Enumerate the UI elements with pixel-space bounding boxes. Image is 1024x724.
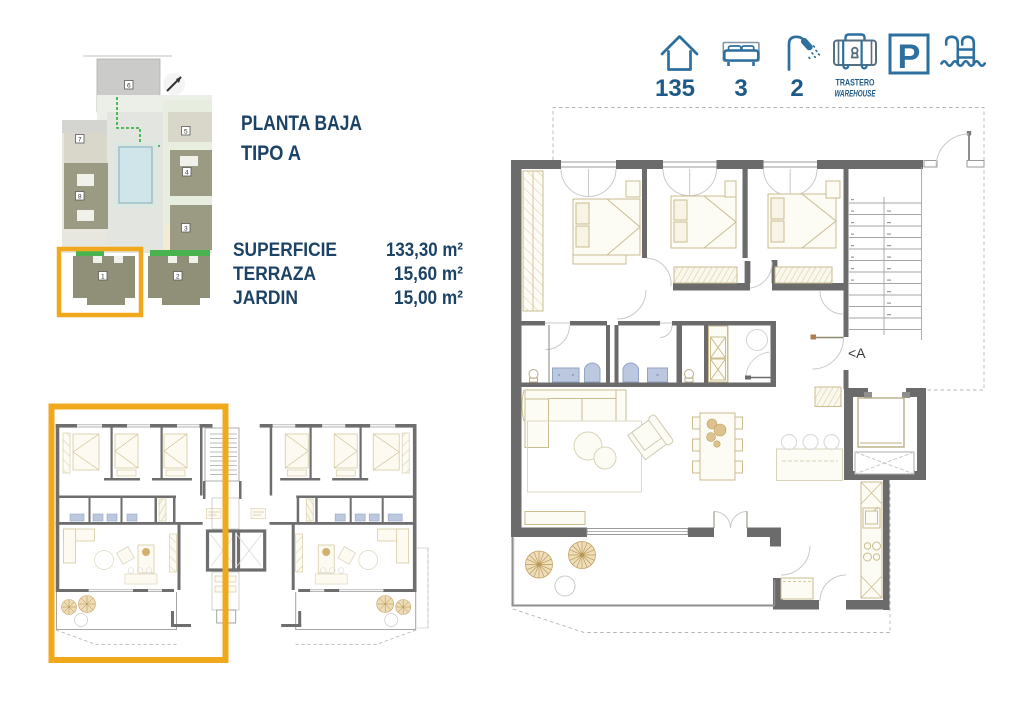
svg-text:8: 8 [78,193,82,200]
svg-text:2: 2 [176,273,180,280]
svg-text:7: 7 [78,136,82,143]
svg-text:TERRAZA: TERRAZA [233,264,316,285]
svg-text:<A: <A [848,345,866,361]
svg-text:4: 4 [185,169,189,176]
svg-text:135: 135 [655,75,695,102]
svg-text:3: 3 [734,75,747,102]
svg-text:TRASTERO: TRASTERO [836,78,875,89]
svg-text:WAREHOUSE: WAREHOUSE [835,89,876,100]
svg-text:15,60 m²: 15,60 m² [394,264,463,285]
svg-text:6: 6 [127,82,131,89]
svg-text:3: 3 [184,225,188,232]
svg-text:5: 5 [184,128,188,135]
svg-text:TIPO A: TIPO A [241,142,301,165]
svg-text:2: 2 [790,75,803,102]
svg-text:15,00 m²: 15,00 m² [394,288,463,309]
svg-text:JARDIN: JARDIN [233,288,298,309]
svg-text:P: P [898,38,921,76]
svg-text:133,30 m²: 133,30 m² [386,240,463,261]
svg-text:1: 1 [101,273,105,280]
svg-text:SUPERFICIE: SUPERFICIE [233,240,337,261]
svg-text:PLANTA BAJA: PLANTA BAJA [241,112,362,135]
